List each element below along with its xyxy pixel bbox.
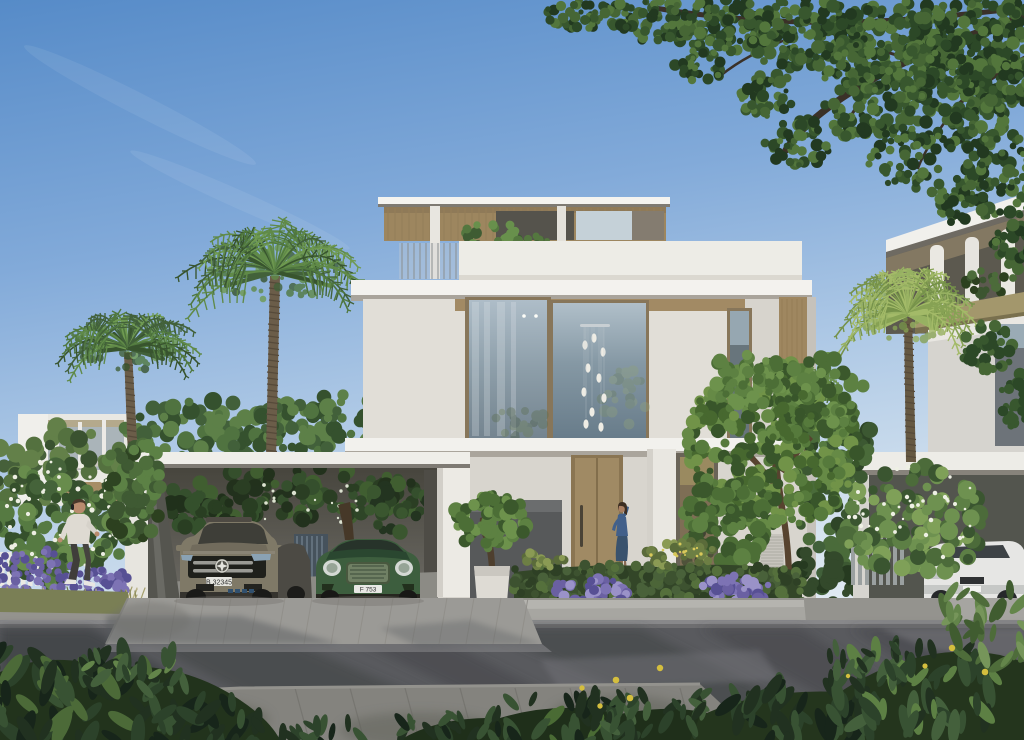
svg-text:F 753: F 753 [360, 587, 377, 594]
